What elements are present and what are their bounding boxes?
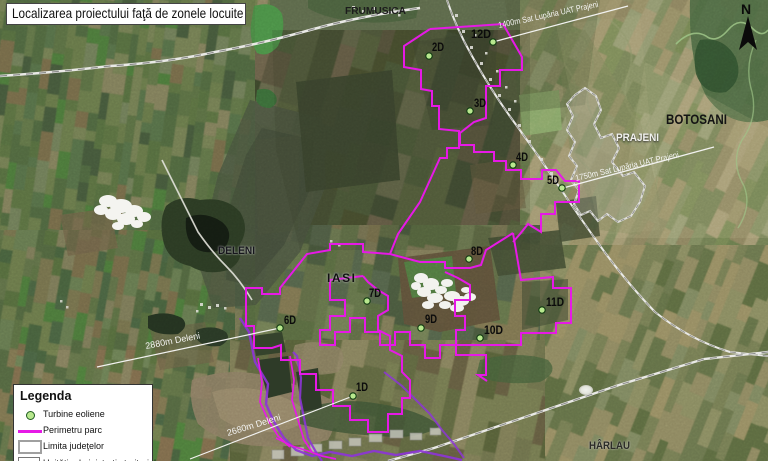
- svg-text:3D: 3D: [474, 96, 486, 110]
- svg-text:2D: 2D: [432, 40, 444, 54]
- svg-text:9D: 9D: [425, 312, 437, 326]
- svg-text:4D: 4D: [516, 150, 528, 164]
- svg-text:BOTOSANI: BOTOSANI: [666, 111, 727, 127]
- svg-text:HÂRLAU: HÂRLAU: [589, 439, 630, 452]
- svg-text:1D: 1D: [356, 380, 368, 394]
- svg-text:5D: 5D: [547, 173, 559, 187]
- svg-text:7D: 7D: [369, 286, 381, 300]
- svg-text:10D: 10D: [484, 323, 503, 337]
- svg-text:12D: 12D: [471, 27, 491, 41]
- svg-text:N: N: [741, 1, 751, 17]
- svg-text:FRUMUSICA: FRUMUSICA: [345, 6, 406, 17]
- svg-text:6D: 6D: [284, 313, 296, 327]
- svg-text:8D: 8D: [471, 244, 483, 258]
- svg-text:PRAJENI: PRAJENI: [616, 132, 659, 144]
- svg-text:DELENI: DELENI: [218, 245, 255, 257]
- svg-text:11D: 11D: [546, 295, 564, 309]
